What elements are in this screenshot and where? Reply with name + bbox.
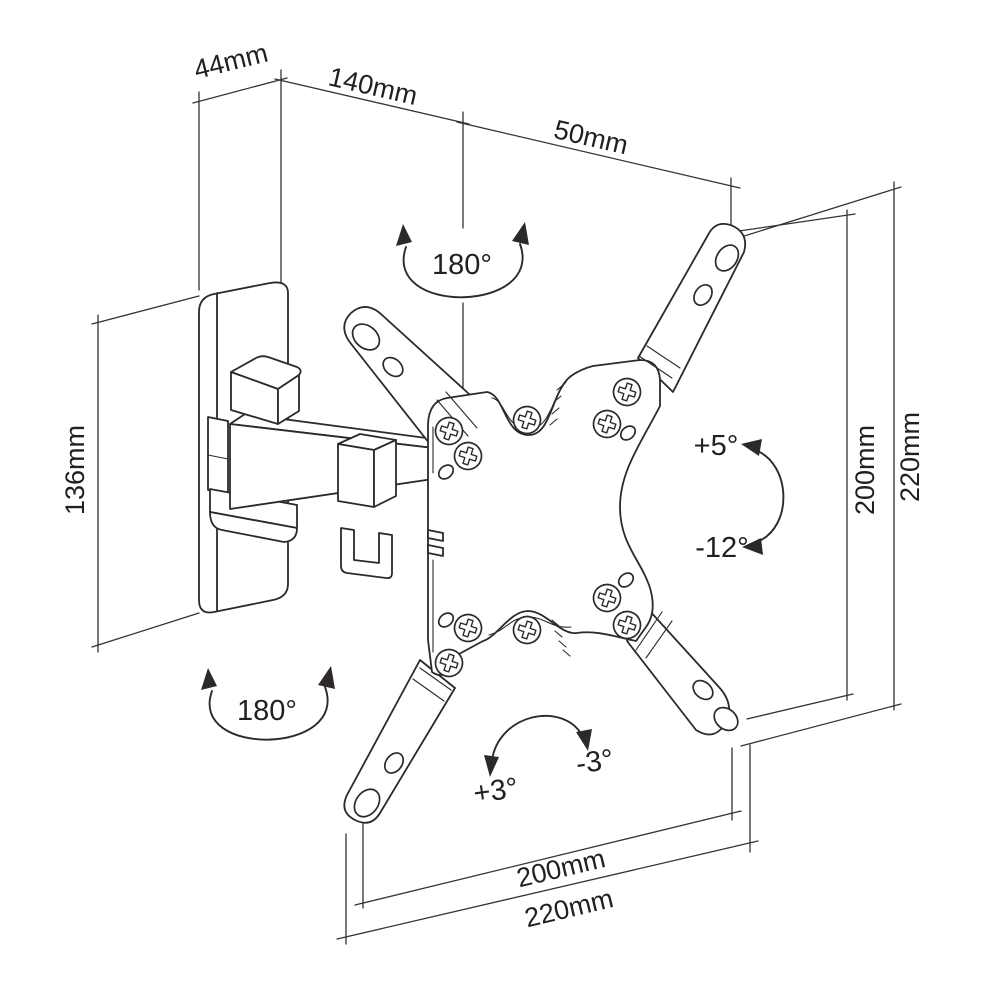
dim-label-height-200mm: 200mm [850, 425, 880, 515]
ext-line [747, 694, 853, 719]
tv-wall-mount-diagram: 44mm 140mm 50mm 136mm 200mm 220mm 200mm … [0, 0, 1000, 1000]
dim-label-136mm: 136mm [60, 425, 90, 515]
arrow-icon [396, 224, 412, 246]
dim-label-140mm: 140mm [326, 61, 420, 110]
cable-clip [338, 444, 374, 507]
arrow-icon [741, 439, 762, 456]
roll-right-label: -3° [574, 744, 615, 781]
ext-line [741, 187, 901, 237]
plate-tab [428, 530, 443, 541]
dim-label-height-220mm: 220mm [895, 412, 925, 502]
arrow-icon [484, 755, 499, 777]
ext-line [92, 296, 199, 324]
ext-line [92, 613, 199, 647]
arrow-icon [318, 666, 335, 689]
ext-line [741, 704, 901, 746]
tilt-up-label: +5° [694, 430, 739, 462]
roll-left-label: +3° [471, 772, 520, 810]
tilt-down-label: -12° [695, 532, 749, 564]
swivel-angle-bottom-label: 180° [237, 695, 297, 727]
screw [510, 613, 544, 647]
clip-side [374, 440, 396, 507]
arrow-icon [201, 668, 217, 690]
dim-label-44mm: 44mm [191, 38, 271, 85]
roll-arc [492, 716, 582, 760]
mount-drawing-svg: 44mm 140mm 50mm 136mm 200mm 220mm 200mm … [0, 0, 1000, 1000]
tilt-arc [755, 450, 783, 542]
dim-label-width-220mm: 220mm [522, 883, 617, 933]
ext-line [739, 214, 855, 231]
swivel-angle-top-label: 180° [432, 249, 492, 281]
cable-hook [341, 528, 392, 578]
arrow-icon [512, 222, 529, 245]
plate-tab [428, 545, 443, 556]
